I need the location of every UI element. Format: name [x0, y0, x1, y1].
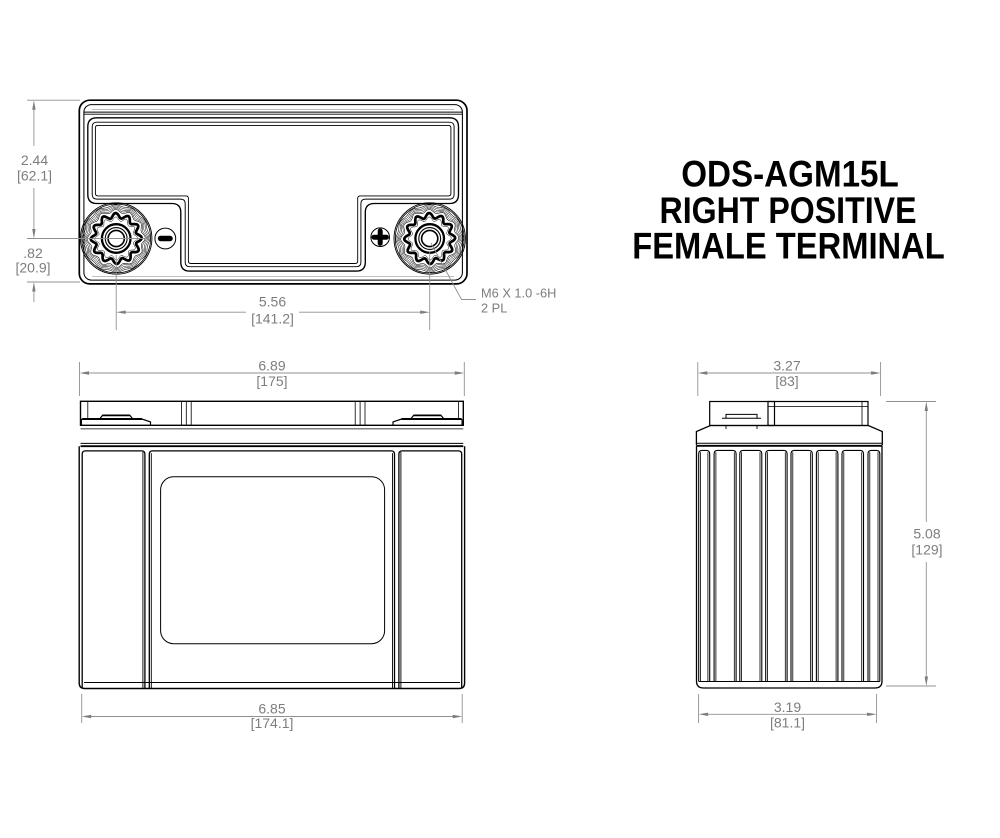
svg-text:[175]: [175] [256, 373, 287, 389]
svg-text:6.85: 6.85 [258, 700, 285, 716]
svg-text:FEMALE TERMINAL: FEMALE TERMINAL [632, 226, 945, 267]
svg-text:[83]: [83] [775, 373, 798, 389]
svg-text:[62.1]: [62.1] [17, 168, 52, 184]
svg-text:3.27: 3.27 [773, 358, 800, 374]
svg-text:2 PL: 2 PL [481, 301, 507, 316]
svg-text:2.44: 2.44 [21, 152, 48, 168]
svg-text:3.19: 3.19 [774, 699, 801, 715]
svg-text:5.56: 5.56 [259, 293, 286, 309]
svg-text:M6 X 1.0 -6H: M6 X 1.0 -6H [481, 286, 556, 301]
svg-text:6.89: 6.89 [258, 358, 285, 374]
svg-text:5.08: 5.08 [913, 526, 940, 542]
svg-text:[129]: [129] [911, 542, 942, 558]
svg-text:[20.9]: [20.9] [15, 260, 50, 276]
svg-text:[141.2]: [141.2] [251, 311, 294, 327]
svg-text:[174.1]: [174.1] [251, 715, 294, 731]
svg-text:[81.1]: [81.1] [770, 715, 805, 731]
svg-text:ODS-AGM15L: ODS-AGM15L [681, 154, 899, 195]
